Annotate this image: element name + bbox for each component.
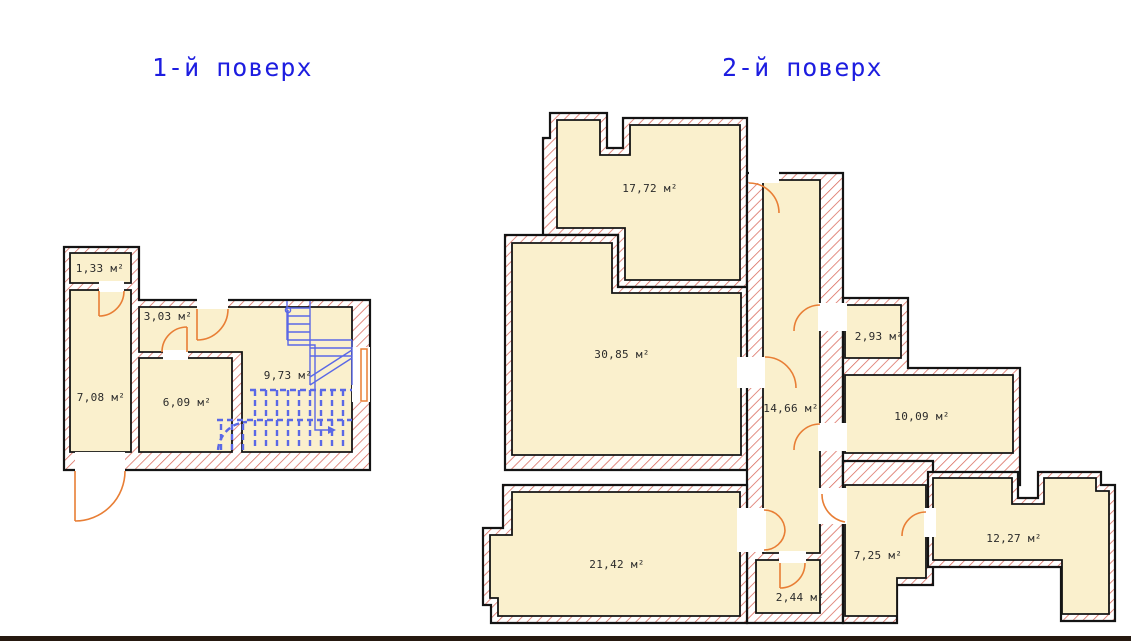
door-opening [737, 357, 765, 388]
room-area-label: 21,42 м² [589, 558, 644, 571]
door-opening [818, 488, 847, 524]
door-opening [818, 303, 847, 331]
room-area-label: 9,73 м² [264, 369, 312, 382]
door-opening [197, 297, 228, 309]
floor1-plan: 1,33 м² 3,03 м² 7,08 м² 6,09 м² 9,73 м² [50, 238, 390, 538]
floor1-title: 1-й поверх [152, 53, 292, 82]
room-area-label: 7,25 м² [854, 549, 902, 562]
room-area-label: 2,44 м² [776, 591, 824, 604]
room-area-label: 1,33 м² [76, 262, 124, 275]
door-opening [75, 452, 125, 472]
door-opening [737, 508, 766, 552]
room-area-label: 14,66 м² [763, 402, 818, 415]
room-area-label: 30,85 м² [594, 348, 649, 361]
room-area-label: 6,09 м² [163, 396, 211, 409]
floor2-plan: 17,72 м² 30,85 м² 14,66 м² 2,93 м² 10,09… [478, 103, 1128, 633]
window [361, 349, 367, 401]
floor2-room-21-42 [490, 492, 740, 616]
door-opening [163, 350, 188, 360]
room-area-label: 2,93 м² [855, 330, 903, 343]
bottom-bar [0, 636, 1131, 641]
room-area-label: 12,27 м² [986, 532, 1041, 545]
door-opening [99, 281, 124, 292]
door-arc [75, 471, 125, 521]
room-area-label: 17,72 м² [622, 182, 677, 195]
room-area-label: 7,08 м² [77, 391, 125, 404]
room-area-label: 3,03 м² [144, 310, 192, 323]
floor2-title: 2-й поверх [722, 53, 867, 82]
door-opening [779, 551, 806, 563]
floor2-corridor-14-66 [763, 180, 820, 553]
floor1-room-7-08 [70, 290, 131, 452]
door-opening [818, 423, 847, 451]
room-area-label: 10,09 м² [894, 410, 949, 423]
door-opening [749, 170, 779, 183]
